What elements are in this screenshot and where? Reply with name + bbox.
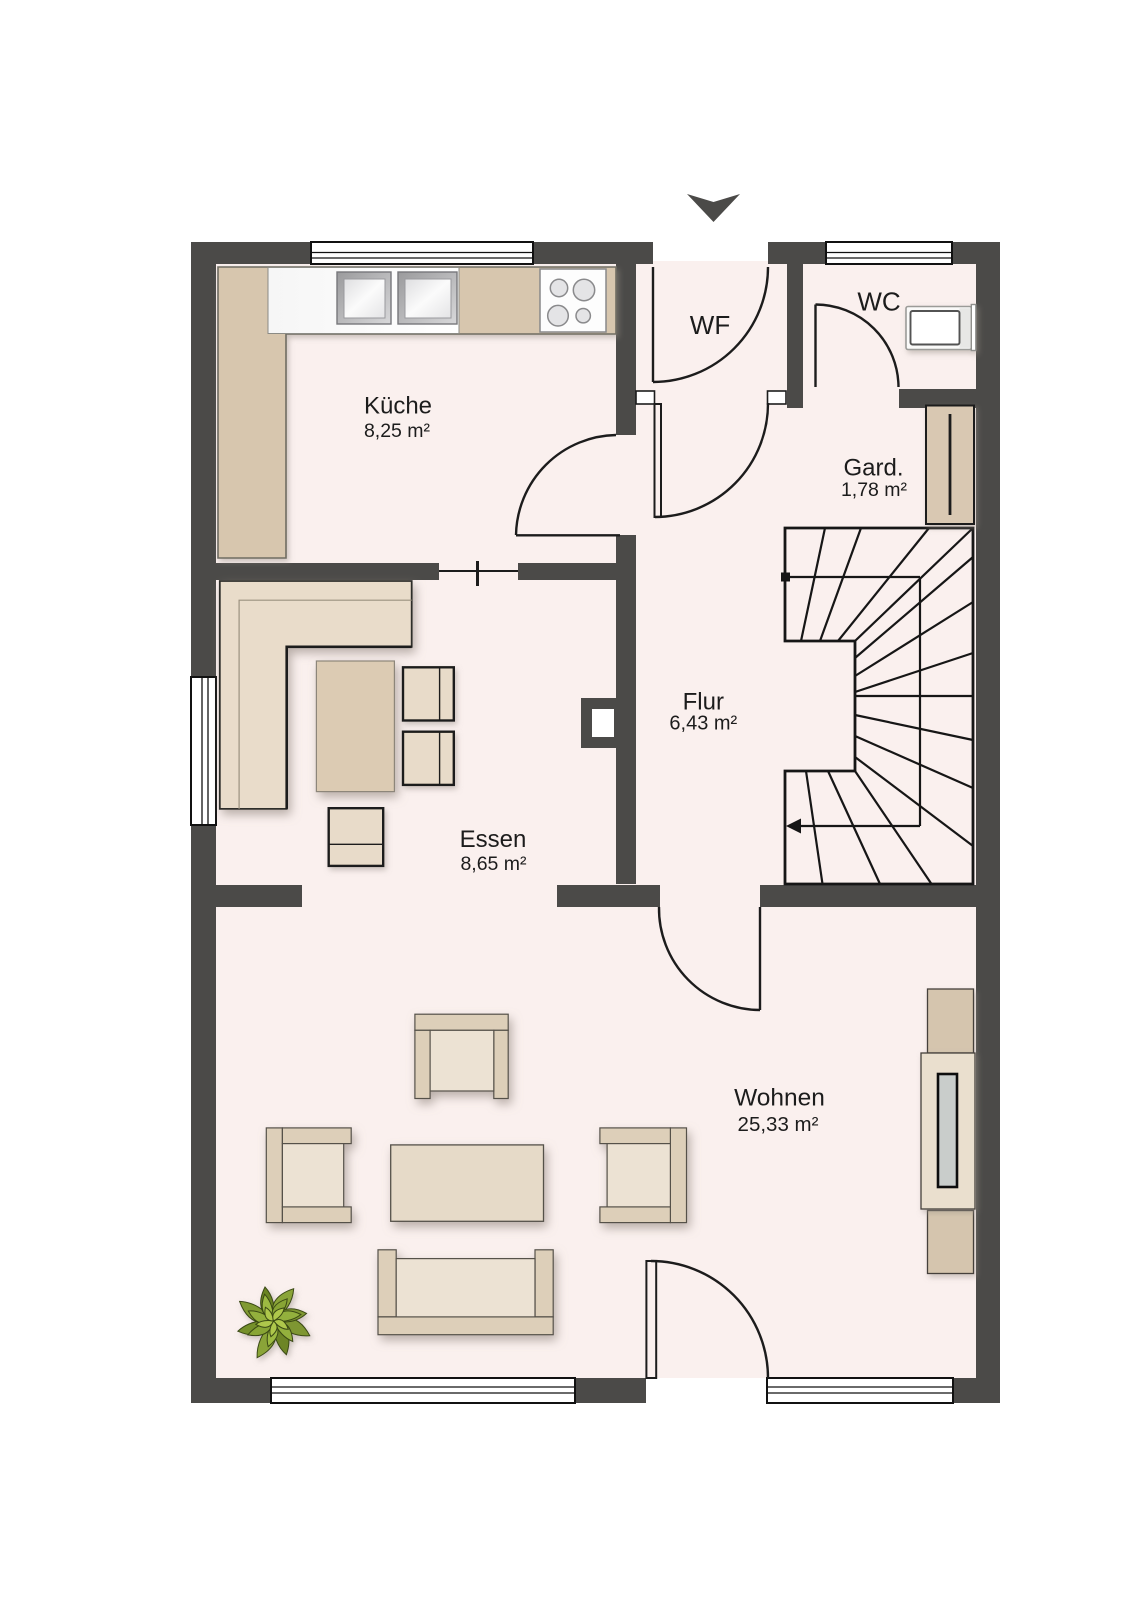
svg-text:Gard.: Gard. [843, 455, 903, 482]
svg-text:8,65 m²: 8,65 m² [460, 853, 527, 875]
svg-text:Flur: Flur [683, 689, 724, 716]
svg-text:Küche: Küche [364, 393, 432, 420]
svg-text:6,43 m²: 6,43 m² [669, 713, 737, 735]
svg-text:Essen: Essen [460, 826, 527, 853]
svg-text:WF: WF [690, 310, 730, 340]
svg-text:Wohnen: Wohnen [734, 1085, 825, 1112]
svg-text:WC: WC [857, 287, 900, 317]
svg-text:25,33 m²: 25,33 m² [738, 1113, 819, 1136]
svg-text:1,78 m²: 1,78 m² [841, 479, 908, 501]
svg-text:8,25 m²: 8,25 m² [364, 420, 431, 442]
